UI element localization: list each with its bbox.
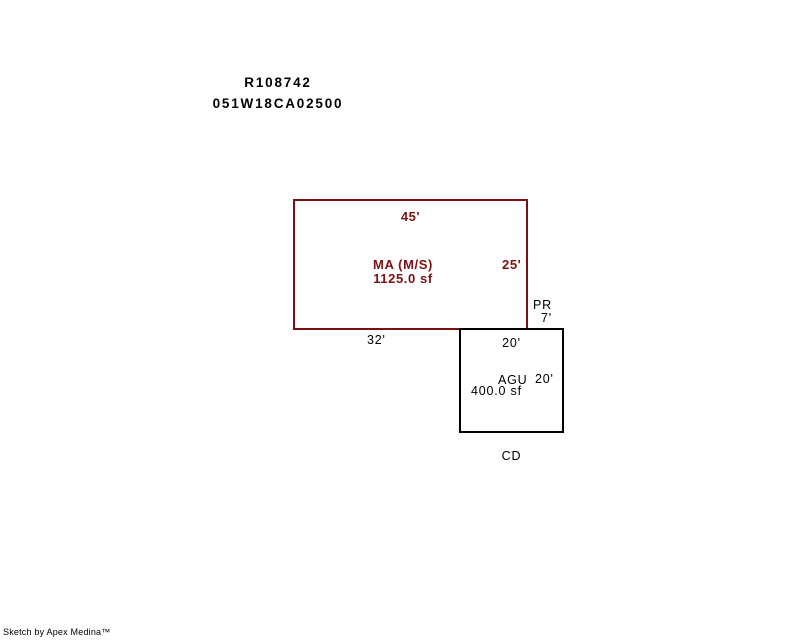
main-dim-bottom: 32' xyxy=(367,334,386,347)
main-dim-right: 25' xyxy=(502,258,521,272)
parcel-id: 051W18CA02500 xyxy=(0,97,556,111)
sketch-credit: Sketch by Apex Medina™ xyxy=(3,627,110,637)
main-area-label-block: MA (M/S) 1125.0 sf xyxy=(293,258,513,285)
agu-dim-right: 20' xyxy=(535,373,554,386)
main-area-sf: 1125.0 sf xyxy=(293,272,513,286)
porch-dim: 7' xyxy=(541,312,552,325)
main-area-code: MA (M/S) xyxy=(293,258,513,272)
agu-dim-top: 20' xyxy=(459,337,564,350)
agu-area-sf: 400.0 sf xyxy=(471,385,522,398)
property-sketch-canvas: R108742 051W18CA02500 45' MA (M/S) 1125.… xyxy=(0,0,800,640)
main-dim-top: 45' xyxy=(293,210,528,224)
record-id: R108742 xyxy=(0,76,556,90)
deck-code: CD xyxy=(459,450,564,463)
